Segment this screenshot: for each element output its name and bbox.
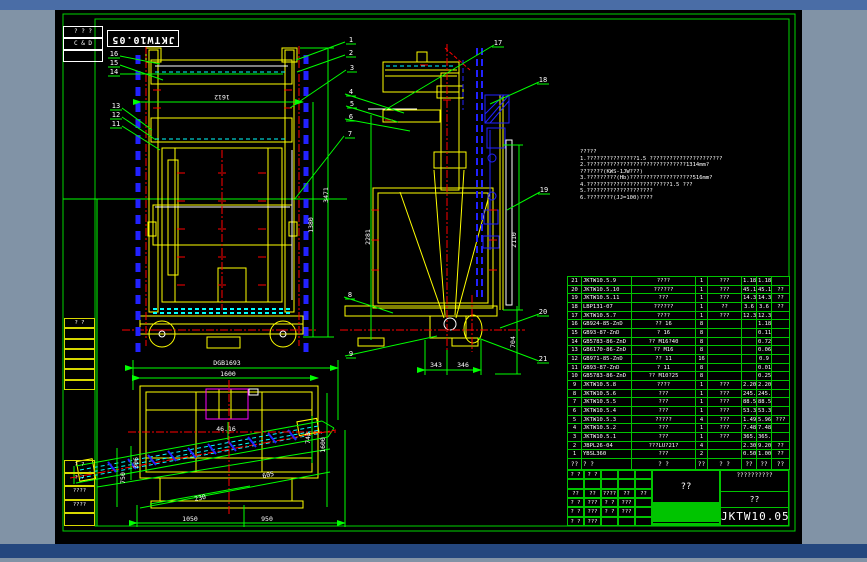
grid-row: ? ????? ????: [567, 507, 652, 516]
bom-row-cell: ???: [632, 433, 696, 442]
bom-row-cell: JKTW10.5.9: [582, 277, 632, 286]
bom-row-cell: [772, 389, 790, 398]
bom-row-cell: [742, 329, 757, 338]
balloon-label: 20: [539, 308, 547, 316]
bom-row-cell: 53.35: [742, 407, 757, 416]
bom-row-cell: JKTW10.5.3: [582, 415, 632, 424]
grid-cell: [601, 470, 618, 479]
corner-signature-table: ? ? ?C & D: [63, 26, 103, 62]
bom-row-cell: ???: [708, 285, 742, 294]
bom-row-cell: GB93-87-ZnD: [582, 363, 632, 372]
bom-row-cell: [772, 398, 790, 407]
bom-row-cell: ??: [708, 303, 742, 312]
bom-row: 17JKTW10.5.7????1???12.312.3: [568, 311, 790, 320]
grid-cell: [635, 498, 652, 507]
grid-row: ? ????: [567, 517, 652, 526]
bom-row-cell: [772, 337, 790, 346]
bom-row-cell: GB924-85-ZnD: [582, 320, 632, 329]
grid-cell: ??: [567, 489, 584, 498]
grid-cell: C & D: [63, 38, 103, 50]
grid-cell: [64, 359, 95, 369]
grid-cell: ???: [584, 498, 601, 507]
left-strip-lower: ? ?? ?????????: [64, 460, 95, 526]
bom-row-cell: 245.19: [757, 389, 772, 398]
grid-cell: [601, 479, 618, 488]
bom-row-cell: JKTW10.5.1: [582, 433, 632, 442]
bom-row: 7JKTW10.5.5???1???88.5488.54: [568, 398, 790, 407]
bom-row-cell: 2.20: [742, 381, 757, 390]
dim-base-right: 346: [457, 361, 469, 369]
balloon-label: 12: [112, 111, 120, 119]
balloon-label: 5: [350, 100, 354, 108]
bom-header-row-cell: ? ?: [632, 459, 696, 470]
bom-row-cell: [772, 320, 790, 329]
bom-row-cell: ???: [708, 424, 742, 433]
dim-front-width: 1612: [214, 93, 230, 101]
balloon-label: 18: [539, 76, 547, 84]
balloon-label: 8: [348, 291, 352, 299]
grid-cell: ??: [584, 489, 601, 498]
bom-row-cell: YBSL360: [582, 450, 632, 459]
bom-row-cell: [772, 277, 790, 286]
grid-row: [64, 328, 95, 338]
bom-row-cell: 1: [696, 433, 708, 442]
grid-cell: [635, 507, 652, 516]
title-block-mid-cells: SAN?NHb: [652, 510, 720, 519]
bom-row-cell: 0.11: [757, 329, 772, 338]
dim-plan-total: DGB1693: [213, 359, 240, 367]
bom-row-cell: 12.3: [742, 311, 757, 320]
bom-row-cell: 1: [696, 303, 708, 312]
grid-cell: ???: [584, 507, 601, 516]
conveyor: [70, 421, 336, 487]
grid-cell: [618, 470, 635, 479]
bom-row-cell: GB5783-86-ZnD: [582, 372, 632, 381]
bom-row-cell: ???: [708, 415, 742, 424]
bom-row-cell: 1.49: [742, 415, 757, 424]
bom-row-cell: [708, 337, 742, 346]
grid-cell: ??: [635, 489, 652, 498]
grid-cell: ? ?: [64, 460, 95, 473]
balloon-label: 6: [349, 113, 353, 121]
bom-row-cell: 5.96: [757, 415, 772, 424]
bom-row-cell: 0.9: [757, 355, 772, 364]
bom-row-cell: 2: [696, 450, 708, 459]
bom-row-cell: ? 11: [632, 363, 696, 372]
bom-row-cell: GB971-85-ZnD: [582, 355, 632, 364]
bom-header-row-cell: ??: [696, 459, 708, 470]
bom-row: 14GB5783-86-ZnD?? M16?4080.72: [568, 337, 790, 346]
grid-row: [64, 513, 95, 526]
bom-row-cell: 88.54: [757, 398, 772, 407]
bom-row-cell: 11: [568, 363, 582, 372]
bom-row-cell: 15: [568, 329, 582, 338]
dim-plan-r2: 1600: [319, 437, 327, 453]
dim-base-left: 343: [430, 361, 442, 369]
project-name: ??: [720, 491, 789, 508]
grid-cell: ????: [64, 486, 95, 499]
bom-row-cell: [742, 355, 757, 364]
grid-cell: ? ?: [64, 473, 95, 486]
bom-row-cell: ?? 11: [632, 355, 696, 364]
bom-row-cell: 1.18: [757, 320, 772, 329]
title-block-mid-top-row: ?????????: [652, 503, 720, 510]
bom-row-cell: ????: [632, 381, 696, 390]
grid-cell: [635, 517, 652, 526]
bom-row-cell: GB5783-86-ZnD: [582, 337, 632, 346]
bom-row-cell: [742, 337, 757, 346]
dimensions: [117, 48, 523, 527]
bom-row: 8JKTW10.5.6???1???245.19245.19: [568, 389, 790, 398]
bom-row-cell: 2.30: [742, 441, 757, 450]
balloon-label: 19: [540, 186, 548, 194]
bom-row-cell: JKTW10.5.8: [582, 381, 632, 390]
grid-cell: [601, 517, 618, 526]
dim-side-h: 2281: [364, 229, 372, 245]
grid-cell: ??: [618, 489, 635, 498]
bom-row-cell: 3.6: [757, 303, 772, 312]
bom-row-cell: 18: [568, 303, 582, 312]
bom-row-cell: 1: [696, 407, 708, 416]
bom-row-cell: ?????: [632, 415, 696, 424]
bom-row-cell: [742, 346, 757, 355]
balloon-label: 15: [110, 59, 118, 67]
bom-row-cell: 14: [568, 337, 582, 346]
bom-row-cell: [772, 424, 790, 433]
dim-plan-d1: 605: [262, 470, 275, 480]
grid-cell: ? ?: [567, 517, 584, 526]
bom-row-cell: 4: [696, 415, 708, 424]
bom-row-cell: ?? 16: [632, 320, 696, 329]
bom-row-cell: 21: [568, 277, 582, 286]
grid-cell: [567, 479, 584, 488]
bom-row-cell: ???: [708, 311, 742, 320]
bom-row: 3JKTW10.5.1???1???365.4365.4: [568, 433, 790, 442]
grid-cell: ???: [618, 507, 635, 516]
bom-header-row: ??? ?? ???? ???????: [568, 459, 790, 470]
bom-row: 4JKTW10.5.2???1???7.487.48: [568, 424, 790, 433]
plan-view-magenta-box: [206, 389, 248, 419]
bom-row-cell: [772, 372, 790, 381]
bom-row: 15GB93-87-ZnD? 1680.11: [568, 329, 790, 338]
balloon-label: 2: [349, 49, 353, 57]
grid-row: ? ?? ?: [567, 470, 652, 479]
bom-row-cell: 7: [568, 398, 582, 407]
bom-row-cell: 3: [568, 433, 582, 442]
bom-row-cell: 8: [696, 337, 708, 346]
bom-row-cell: 8: [696, 372, 708, 381]
title-block-mid-bottom-row: ???: [652, 519, 720, 526]
bom-row-cell: [708, 320, 742, 329]
grid-cell: [584, 479, 601, 488]
grid-cell: 6.????????(JJ=100)????: [580, 194, 780, 201]
bom-row-cell: 6: [568, 407, 582, 416]
bom-row-cell: [708, 372, 742, 381]
bom-row-cell: 53.35: [757, 407, 772, 416]
bom-row-cell: ???: [708, 433, 742, 442]
bom-row-cell: 9.20: [757, 441, 772, 450]
bom-row-cell: 1.00: [757, 450, 772, 459]
bom-row-cell: ?? M16: [632, 346, 696, 355]
grid-cell: [635, 479, 652, 488]
bom-row-cell: ????: [632, 277, 696, 286]
hoist-mechanism: [463, 48, 509, 300]
bom-row-cell: 1: [696, 277, 708, 286]
grid-row: [64, 349, 95, 359]
bom-row-cell: [742, 363, 757, 372]
bom-row-cell: 8: [696, 346, 708, 355]
bom-row-cell: [772, 346, 790, 355]
dim-plan-r1: 743: [304, 432, 312, 444]
dim-plan-b1: 1050: [182, 515, 198, 523]
bom-row-cell: 245.19: [742, 389, 757, 398]
bom-row-cell: JKTW10.5.11: [582, 294, 632, 303]
bom-row-cell: ???: [708, 294, 742, 303]
grid-cell: ????: [601, 489, 618, 498]
cad-window: 1612 1380 3471 2281 2110 704 343 346 DGB…: [0, 0, 867, 562]
bom-row-cell: ???: [708, 389, 742, 398]
title-block-left-grid: ? ?? ?????????????? ????? ????? ????? ??…: [567, 470, 652, 526]
balloon-label: 13: [112, 102, 120, 110]
dim-plan-mid: 46.16: [216, 425, 236, 433]
bom-row: 9JKTW10.5.8????1???2.202.20: [568, 381, 790, 390]
balloon-label: 11: [112, 120, 120, 128]
bom-row-cell: 16: [696, 355, 708, 364]
bom-row-cell: 365.4: [742, 433, 757, 442]
grid-cell: ? ?: [601, 507, 618, 516]
bom-row-cell: 0.25: [757, 372, 772, 381]
bom-row-cell: [772, 355, 790, 364]
bom-row-cell: JKTW10.5.7: [582, 311, 632, 320]
bom-row-cell: 19: [568, 294, 582, 303]
sheet-top-title: JKTW10.05: [107, 30, 179, 47]
bom-row-cell: 20: [568, 285, 582, 294]
bom-row-cell: ???: [632, 450, 696, 459]
title-block-name-cell: ??: [652, 470, 720, 503]
bom-row-cell: 0.06: [757, 346, 772, 355]
bom-row-cell: ??: [772, 294, 790, 303]
bom-row: 6JKTW10.5.4???1???53.3553.35: [568, 407, 790, 416]
bom-header-row-cell: ??: [568, 459, 582, 470]
bom-row-cell: ???: [708, 407, 742, 416]
bom-row: 5JKTW10.5.3?????4???1.495.96???: [568, 415, 790, 424]
bom-row-cell: GB93-87-ZnD: [582, 329, 632, 338]
bom-header-row-cell: ??: [772, 459, 790, 470]
bom-row-cell: ?? M16?40: [632, 337, 696, 346]
bom-row: 19JKTW10.5.11???1???14.314.3??: [568, 294, 790, 303]
bom-row-cell: 1.18: [742, 277, 757, 286]
grid-cell: ?: [652, 524, 720, 526]
dim-plan-b2: 950: [261, 515, 273, 523]
bom-row: 12GB971-85-ZnD?? 11160.9: [568, 355, 790, 364]
bom-row-cell: ???LU?21?: [632, 441, 696, 450]
bom-row-cell: LBP131-07: [582, 303, 632, 312]
bom-row-cell: ???: [632, 424, 696, 433]
bom-row: 18LBP131-07??????1??3.63.6??: [568, 303, 790, 312]
bom-header-row-cell: ? ?: [708, 459, 742, 470]
bom-row-cell: 8: [696, 363, 708, 372]
bom-row-cell: JKTW10.5.2: [582, 424, 632, 433]
grid-cell: ???: [584, 517, 601, 526]
bom-row-cell: 7.48: [757, 424, 772, 433]
bom-row-cell: [772, 381, 790, 390]
grid-cell: ???: [618, 498, 635, 507]
bom-row-cell: 8: [696, 320, 708, 329]
bom-row-cell: 14.3: [757, 294, 772, 303]
technical-notes: ?????1.???????????????1.5 ??????????????…: [580, 148, 780, 200]
dim-plan-d2: 230: [194, 493, 207, 503]
bom-row-cell: ??????: [632, 285, 696, 294]
drawing-number: JKTW10.05: [720, 507, 789, 526]
dim-base-h: 704: [509, 336, 517, 348]
left-strip-upper: ? ?: [64, 318, 95, 390]
bom-row-cell: [708, 346, 742, 355]
bom-row-cell: 0.01: [757, 363, 772, 372]
bom-row-cell: JKTW10.5.6: [582, 389, 632, 398]
dim-front-h2: 3471: [322, 187, 330, 203]
bom-row-cell: 1: [696, 389, 708, 398]
bom-table: 21JKTW10.5.9????1???1.181.1820JKTW10.5.1…: [567, 276, 790, 470]
bom-row: 2JBPL26-04???LU?21?42.309.20??: [568, 441, 790, 450]
grid-cell: ? ?: [601, 498, 618, 507]
grid-row: ????????????: [567, 489, 652, 498]
bom-row-cell: 1: [696, 285, 708, 294]
grid-row: [64, 369, 95, 379]
grid-cell: [635, 470, 652, 479]
bom-row-cell: 4: [696, 441, 708, 450]
balloon-label: 1: [349, 36, 353, 44]
grid-row: ? ????? ????: [567, 498, 652, 507]
bom-row-cell: 14.3: [742, 294, 757, 303]
grid-row: ? ? ?: [63, 26, 103, 38]
grid-cell: ????: [64, 500, 95, 513]
bom-row-cell: 88.54: [742, 398, 757, 407]
bom-row-cell: [742, 320, 757, 329]
front-view-centerlines: [122, 46, 318, 346]
bom-row-cell: 16: [568, 320, 582, 329]
bom-row-cell: 9: [568, 381, 582, 390]
balloon-label: 7: [348, 130, 352, 138]
bom-header-row-cell: ? ?: [582, 459, 632, 470]
grid-cell: [618, 479, 635, 488]
bom-row-cell: JKTW10.5.5: [582, 398, 632, 407]
company-name: ??????????: [720, 470, 789, 492]
bom-row-cell: ???: [708, 277, 742, 286]
bom-row-cell: 1: [696, 398, 708, 407]
balloon-label: 16: [110, 50, 118, 58]
bom-row-cell: 1.18: [757, 277, 772, 286]
bom-row-cell: [708, 450, 742, 459]
bom-row: 20JKTW10.5.10??????1???45.1645.16??: [568, 285, 790, 294]
bom-row-cell: [708, 329, 742, 338]
bom-row-cell: ???: [632, 294, 696, 303]
bom-row-cell: 3.6: [742, 303, 757, 312]
bom-row-cell: 7.48: [742, 424, 757, 433]
bom-row-cell: 1: [696, 381, 708, 390]
balloon-label: 3: [350, 64, 354, 72]
bom-row-cell: ???: [772, 415, 790, 424]
bom-row-cell: 17: [568, 311, 582, 320]
title-block-middle: ?? ????????? SAN?NHb ???: [652, 470, 720, 526]
bom-row-cell: [772, 311, 790, 320]
bom-row-cell: 5: [568, 415, 582, 424]
grid-cell: ? ?: [567, 498, 584, 507]
grid-row: ?: [652, 524, 720, 526]
bom-row-cell: JKTW10.5.10: [582, 285, 632, 294]
grid-cell: ? ?: [567, 507, 584, 516]
bom-row-cell: [708, 441, 742, 450]
bom-header-row-cell: ??: [757, 459, 772, 470]
balloon-label: 9: [349, 350, 353, 358]
bom-row-cell: [772, 433, 790, 442]
grid-cell: [64, 380, 95, 390]
bom-row-cell: ???: [708, 381, 742, 390]
dim-plan-left2: 306: [132, 457, 140, 469]
bom-row: 10GB5783-86-ZnD?? M10?2580.25: [568, 372, 790, 381]
side-view: [345, 52, 503, 346]
grid-cell: [63, 50, 103, 62]
grid-row: [64, 339, 95, 349]
bom-row-cell: 13: [568, 346, 582, 355]
bom-row-cell: ???: [632, 398, 696, 407]
plan-view: [76, 386, 319, 508]
bom-row-cell: ????: [632, 311, 696, 320]
bom-row-cell: 0.72: [757, 337, 772, 346]
grid-cell: [64, 349, 95, 359]
dim-front-h1: 1380: [307, 217, 315, 233]
bom-row: 16GB924-85-ZnD?? 1681.18: [568, 320, 790, 329]
dim-plan-width: 1600: [220, 370, 236, 378]
bom-header-row-cell: ??: [742, 459, 757, 470]
bom-row-cell: 1: [696, 294, 708, 303]
bom-row-cell: 365.4: [757, 433, 772, 442]
bom-row-cell: 45.16: [757, 285, 772, 294]
grid-row: ????: [64, 500, 95, 513]
bom-row: 21JKTW10.5.9????1???1.181.18: [568, 277, 790, 286]
bom-row-cell: 10: [568, 372, 582, 381]
bom-row-cell: 4: [568, 424, 582, 433]
balloon-label: 14: [110, 68, 118, 76]
bom-row-cell: ??: [772, 441, 790, 450]
grid-cell: [64, 369, 95, 379]
grid-row: [567, 479, 652, 488]
bom-row-cell: 12: [568, 355, 582, 364]
bom-row: 11GB93-87-ZnD? 1180.01: [568, 363, 790, 372]
bom-row-cell: 2.20: [757, 381, 772, 390]
bom-row-cell: 8: [696, 329, 708, 338]
title-block-right: ?????????? ?? JKTW10.05: [720, 470, 789, 526]
bom-row-cell: ???: [632, 389, 696, 398]
bom-row-cell: ??: [772, 285, 790, 294]
bom-row-cell: [772, 363, 790, 372]
dim-plan-left1: 750: [119, 472, 127, 484]
bom-row-cell: 8: [568, 389, 582, 398]
bom-row-cell: [772, 329, 790, 338]
dim-side-rail: 2110: [510, 232, 518, 248]
bom-row-cell: ??: [772, 303, 790, 312]
bom-row-cell: [742, 372, 757, 381]
grid-cell: ? ?: [64, 318, 95, 328]
bom-row-cell: 1: [568, 450, 582, 459]
grid-cell: ? ? ?: [63, 26, 103, 38]
bom-row: 13GB6170-86-ZnD?? M1680.06: [568, 346, 790, 355]
bom-row-cell: ???: [708, 398, 742, 407]
bom-row-cell: 45.16: [742, 285, 757, 294]
bom-row-cell: 2: [568, 441, 582, 450]
bom-row-cell: JKTW10.5.4: [582, 407, 632, 416]
bom-row-cell: 0.50: [742, 450, 757, 459]
bom-row-cell: 1: [696, 311, 708, 320]
